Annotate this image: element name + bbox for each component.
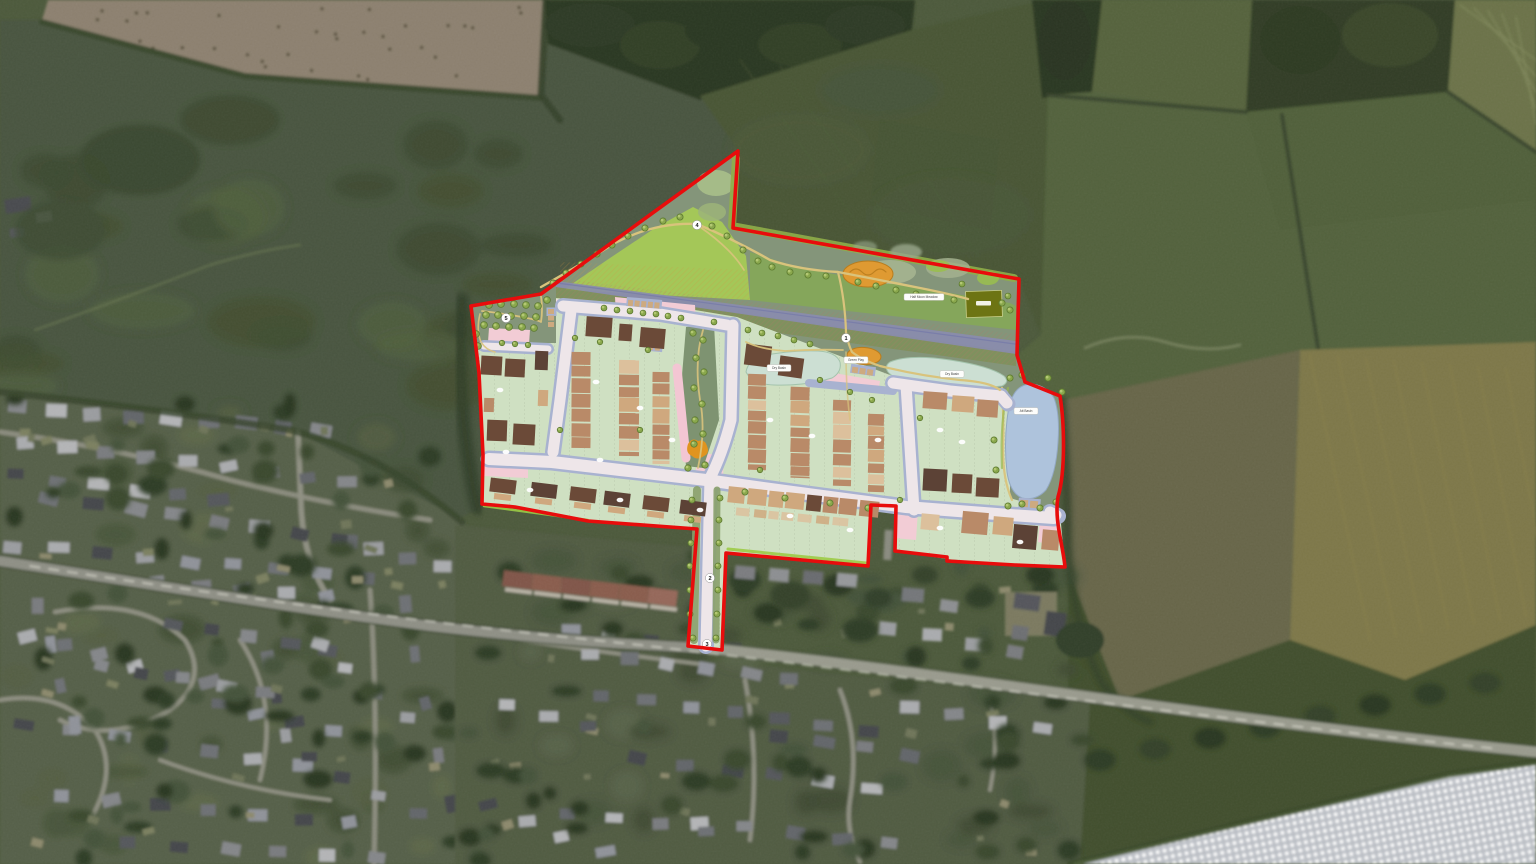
svg-text:5: 5: [504, 316, 507, 322]
svg-text:2: 2: [708, 576, 711, 582]
svg-text:Half Moon Meadow: Half Moon Meadow: [910, 295, 938, 299]
svg-text:Dry Basin: Dry Basin: [772, 366, 786, 370]
svg-text:Dry Basin: Dry Basin: [945, 372, 959, 376]
svg-text:Att Basin: Att Basin: [1020, 409, 1033, 413]
svg-text:1: 1: [844, 336, 847, 342]
svg-text:Green Play: Green Play: [848, 358, 864, 362]
